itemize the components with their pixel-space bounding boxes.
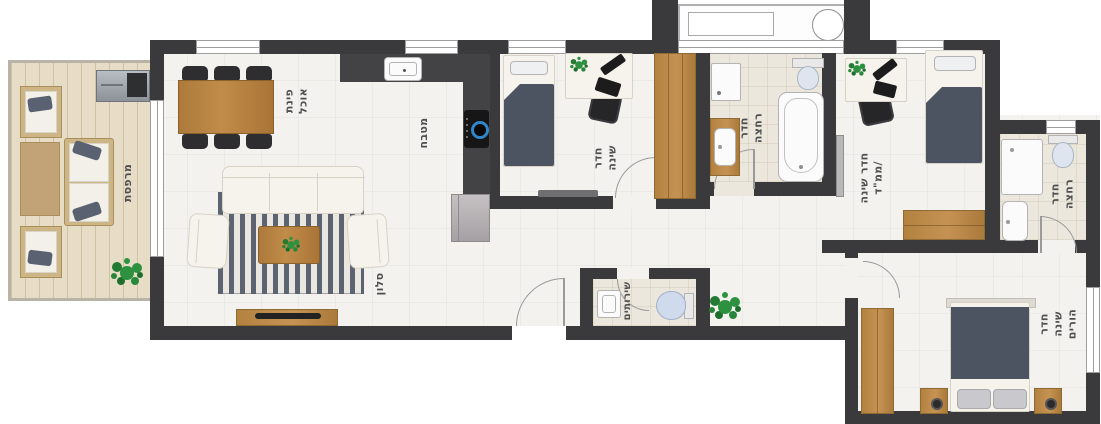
bathroom-sink-icon	[714, 128, 736, 166]
wc-doorway	[617, 268, 649, 279]
single-bed-icon	[925, 50, 983, 164]
plant-icon	[120, 266, 134, 280]
plant-icon	[287, 241, 295, 249]
cooktop-icon	[464, 110, 489, 148]
plant-icon	[575, 61, 583, 69]
window-icon	[196, 40, 260, 54]
wall-wc-left	[580, 268, 593, 340]
shower-icon	[1001, 139, 1043, 195]
pillow-icon	[993, 389, 1027, 409]
floor-plan: מרפסת	[0, 0, 1101, 424]
toilet-icon	[656, 291, 686, 320]
sofa-icon	[222, 166, 364, 214]
dining-chair-icon	[182, 66, 208, 81]
nightstand-icon	[1034, 388, 1062, 414]
boiler-icon	[812, 9, 844, 41]
wall-bathroom2-top	[985, 120, 1100, 134]
sideboard-icon	[903, 210, 985, 240]
wardrobe-icon	[654, 53, 696, 199]
kitchen-sink-icon	[384, 57, 422, 81]
wall-bedroom2-right	[985, 40, 1000, 253]
room-label-balcony: מרפסת	[121, 164, 135, 202]
window-icon	[678, 40, 844, 54]
outdoor-armchair-icon	[20, 86, 62, 138]
wall-wc-right	[696, 268, 710, 340]
room-label-bathroom2: חדר רחצה	[1048, 179, 1076, 209]
bathroom1-door-leaf-icon	[753, 149, 755, 189]
outdoor-armchair-icon	[20, 226, 62, 278]
fridge-icon	[451, 194, 490, 242]
pillow-icon	[957, 389, 991, 409]
dining-chair-icon	[246, 134, 272, 149]
wall-kitchen-back	[490, 53, 500, 196]
wall-bedroom2-bottom	[822, 240, 1000, 253]
armchair-icon	[186, 213, 230, 270]
shelf-icon	[538, 190, 598, 197]
entrance-doorway	[512, 326, 566, 340]
entrance-door-leaf-icon	[563, 278, 565, 326]
window-icon	[1046, 120, 1076, 134]
pillow-icon	[934, 56, 976, 71]
bathroom2-door-leaf-icon	[1040, 216, 1042, 253]
burner-icon	[471, 121, 489, 139]
window-icon	[1086, 287, 1100, 373]
room-label-kitchen: מטבח	[417, 118, 431, 149]
dining-chair-icon	[246, 66, 272, 81]
laptop-icon	[872, 58, 898, 81]
dining-chair-icon	[214, 134, 240, 149]
duvet-icon	[951, 307, 1029, 379]
tv-icon	[255, 313, 321, 319]
room-label-wc: שירותים	[622, 282, 635, 321]
toilet-icon	[1052, 142, 1074, 168]
room-label-master: חדר שינה הורים	[1037, 303, 1078, 346]
bedroom2-door-leaf-icon	[836, 135, 844, 197]
outdoor-rug-icon	[20, 142, 60, 216]
pillow-icon	[510, 61, 548, 75]
single-bed-icon	[503, 55, 555, 167]
duvet-fold	[926, 87, 942, 103]
wall-right	[1086, 120, 1100, 424]
outdoor-sofa-icon	[64, 138, 114, 226]
toilet-icon	[797, 66, 819, 90]
master-doorway	[845, 258, 858, 298]
wall-bottom	[150, 326, 858, 340]
keyboard-icon	[873, 81, 897, 99]
bathtub-icon	[778, 92, 824, 182]
bathroom-sink-icon	[1002, 201, 1028, 241]
laptop-icon	[600, 53, 626, 75]
wall-top	[150, 40, 1000, 54]
room-label-dining: פינת אוכל	[282, 88, 310, 114]
wardrobe-icon	[861, 308, 894, 414]
desk-icon	[565, 53, 633, 99]
keyboard-icon	[594, 77, 621, 98]
sliding-door-icon	[150, 100, 164, 257]
plant-icon	[853, 65, 861, 73]
tv-console-icon	[236, 309, 338, 326]
dining-table-icon	[178, 80, 274, 134]
wc-sink-icon	[597, 290, 621, 318]
room-label-bedroom1: חדר שינה	[591, 145, 619, 170]
plant-icon	[718, 300, 732, 314]
washing-machine-icon	[711, 63, 741, 101]
dining-chair-icon	[182, 134, 208, 149]
double-bed-icon	[950, 302, 1030, 412]
wall-bedroom2-left	[822, 53, 836, 196]
duvet-fold	[504, 84, 520, 100]
room-label-bedroom2: חדר שינה /ממ"ד	[857, 153, 885, 204]
nightstand-icon	[920, 388, 948, 414]
laundry-unit-icon	[688, 12, 774, 36]
window-icon	[405, 40, 458, 54]
window-icon	[508, 40, 566, 54]
room-label-living: סלון	[373, 273, 387, 296]
bbq-grill-icon	[96, 70, 150, 102]
room-label-bathroom1: חדר רחצה	[737, 113, 765, 143]
armchair-icon	[346, 213, 390, 270]
dining-chair-icon	[214, 66, 240, 81]
